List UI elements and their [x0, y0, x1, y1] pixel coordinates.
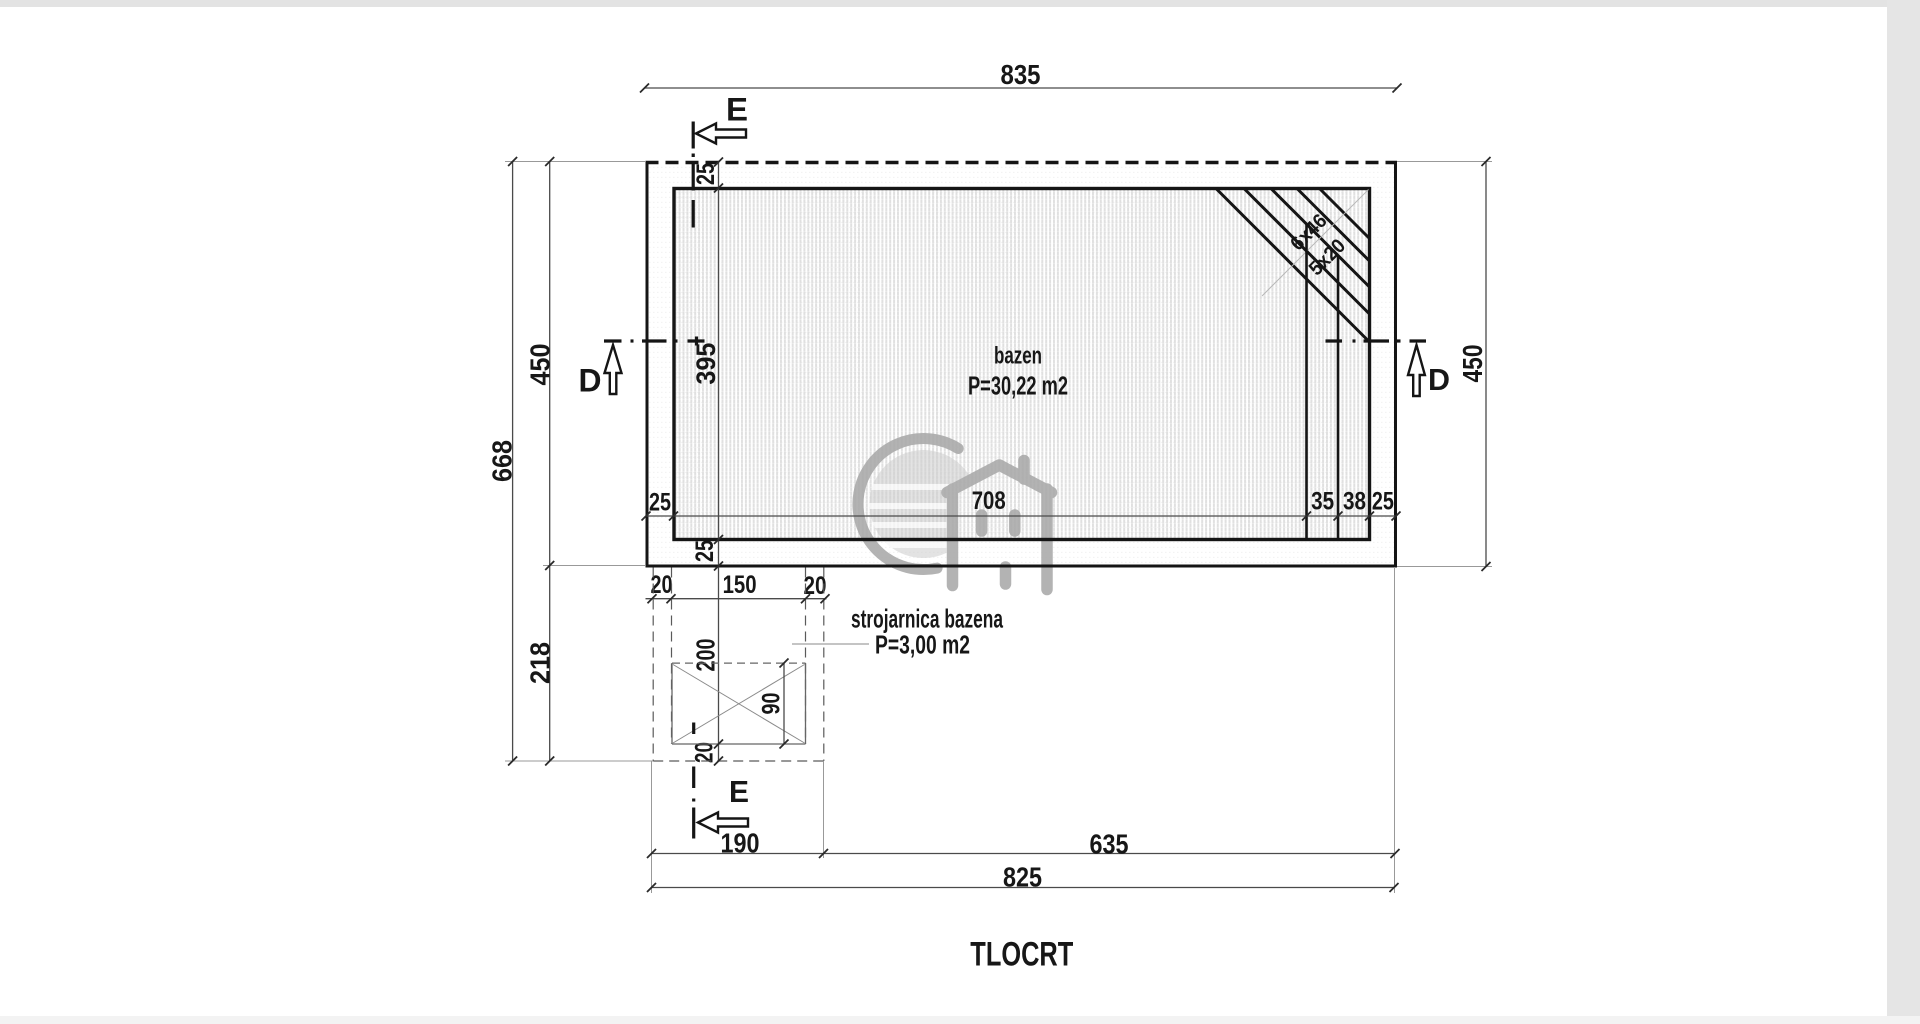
- svg-text:190: 190: [721, 828, 760, 859]
- svg-text:P=3,00 m2: P=3,00 m2: [875, 632, 970, 660]
- svg-text:38: 38: [1343, 488, 1366, 516]
- svg-text:bazen: bazen: [994, 343, 1042, 370]
- svg-text:TLOCRT: TLOCRT: [970, 936, 1073, 974]
- svg-text:835: 835: [1001, 59, 1041, 90]
- svg-text:D: D: [1428, 362, 1450, 397]
- svg-text:35: 35: [1311, 488, 1334, 516]
- svg-text:25: 25: [692, 163, 720, 185]
- svg-text:708: 708: [972, 487, 1006, 515]
- svg-text:450: 450: [525, 344, 556, 386]
- svg-text:E: E: [729, 774, 749, 809]
- svg-text:450: 450: [1457, 345, 1488, 383]
- svg-text:D: D: [579, 363, 602, 399]
- svg-text:668: 668: [487, 440, 518, 482]
- svg-text:218: 218: [525, 642, 556, 684]
- svg-text:E: E: [726, 92, 748, 128]
- svg-text:635: 635: [1090, 829, 1129, 860]
- svg-text:395: 395: [691, 343, 721, 385]
- svg-text:strojarnica bazena: strojarnica bazena: [851, 604, 1003, 634]
- svg-text:150: 150: [723, 571, 757, 599]
- svg-text:25: 25: [649, 489, 671, 517]
- svg-text:25: 25: [1372, 488, 1394, 516]
- svg-text:200: 200: [693, 639, 721, 672]
- svg-text:90: 90: [758, 693, 786, 715]
- svg-text:20: 20: [691, 742, 719, 763]
- svg-text:20: 20: [804, 572, 827, 600]
- svg-text:825: 825: [1003, 862, 1042, 893]
- svg-text:P=30,22 m2: P=30,22 m2: [968, 373, 1068, 401]
